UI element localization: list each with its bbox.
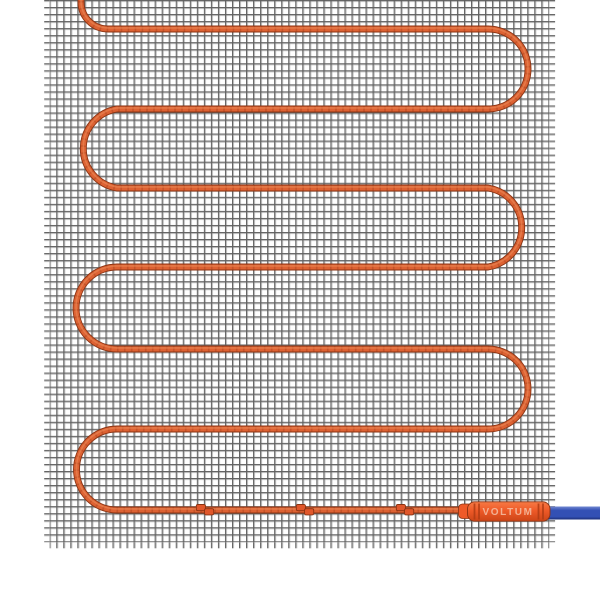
mesh-fringe-left bbox=[44, 0, 50, 542]
clip-half-lower bbox=[205, 509, 214, 515]
connector-sleeve: VOLTUM bbox=[459, 502, 551, 521]
mesh-grid bbox=[50, 0, 550, 542]
heating-mat-illustration: VOLTUM bbox=[0, 0, 600, 600]
brand-label: VOLTUM bbox=[482, 507, 533, 518]
heating-mat-canvas: VOLTUM bbox=[0, 0, 600, 600]
power-lead-cable bbox=[548, 507, 600, 520]
clip-half-lower bbox=[405, 509, 414, 515]
mesh-fringe-bottom bbox=[50, 542, 550, 548]
clip-half-lower bbox=[305, 509, 314, 515]
mesh-fringe-right bbox=[549, 0, 555, 542]
